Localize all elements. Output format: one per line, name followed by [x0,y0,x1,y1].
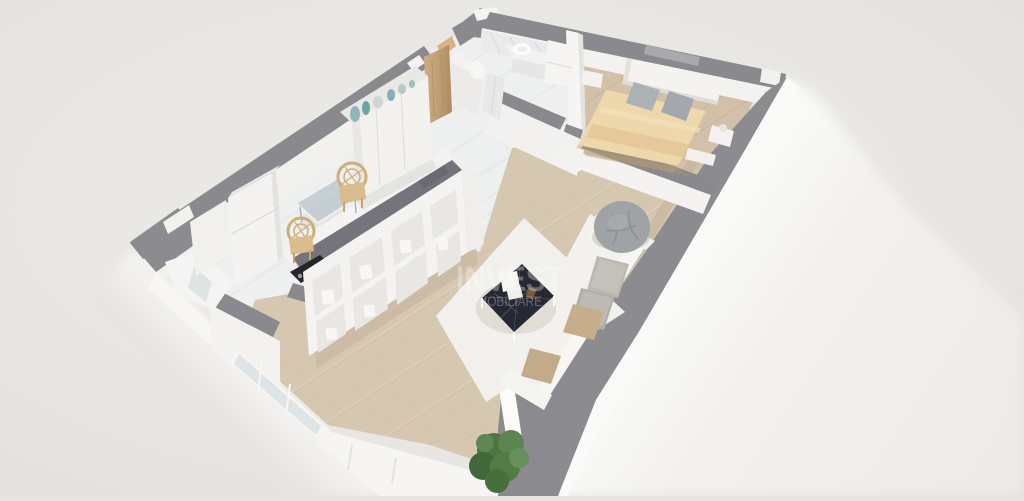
svg-text:IMOBILIARE: IMOBILIARE [474,294,542,309]
